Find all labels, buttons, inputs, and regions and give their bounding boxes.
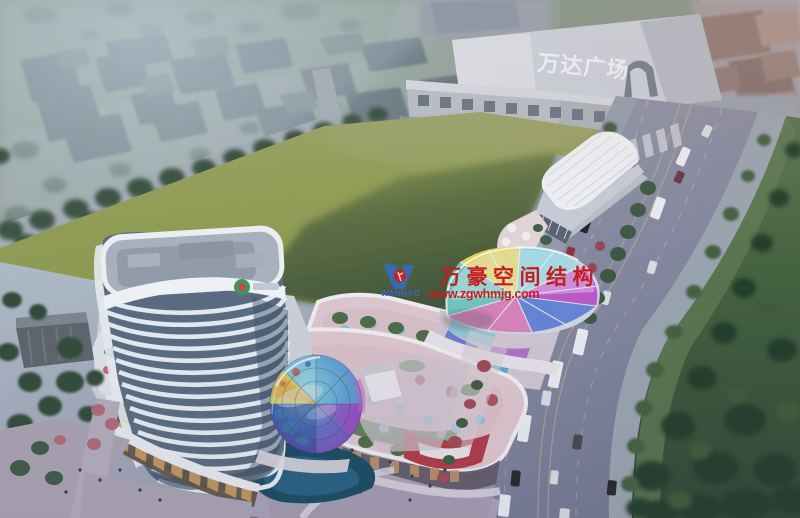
svg-text:www.zgwhmjg.com: www.zgwhmjg.com	[428, 287, 540, 301]
svg-text:WANHAO: WANHAO	[381, 289, 420, 298]
svg-text:万豪空间结构: 万豪空间结构	[439, 265, 599, 289]
